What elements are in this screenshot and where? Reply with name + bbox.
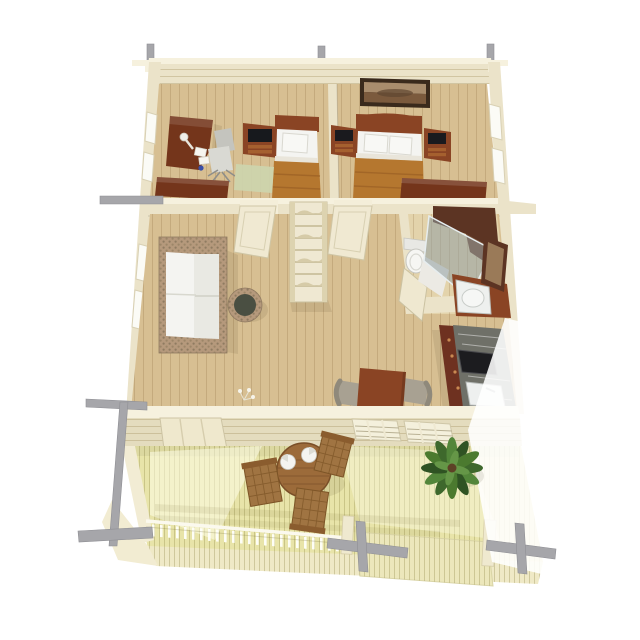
plate-1	[281, 454, 296, 470]
blanket	[272, 161, 321, 201]
roof-beam-left-mid	[100, 196, 163, 204]
single-bed	[272, 115, 321, 201]
wall-picture	[360, 78, 430, 108]
dining-chair-right	[402, 378, 430, 405]
wicker-sofa	[159, 237, 238, 354]
right-ledge	[498, 200, 536, 214]
bedroom-door-left	[234, 206, 276, 258]
floor-plan-render	[0, 0, 640, 640]
bedroom-door-right	[328, 206, 372, 260]
wall-mirror	[481, 236, 508, 292]
front-door	[160, 418, 227, 449]
slatted-window-1	[352, 419, 401, 441]
bathroom	[399, 206, 511, 321]
cabin	[100, 58, 536, 449]
shelf-unit	[290, 202, 332, 312]
slatted-window-2	[404, 421, 454, 444]
floor-plan-svg	[0, 0, 640, 640]
plate-2	[302, 447, 317, 463]
green-rug	[234, 164, 274, 193]
nightstand-left	[331, 125, 358, 158]
tv-stand	[243, 123, 279, 158]
desk-accessory	[198, 165, 203, 170]
dining-table	[357, 368, 406, 411]
nightstand-right	[424, 128, 451, 162]
